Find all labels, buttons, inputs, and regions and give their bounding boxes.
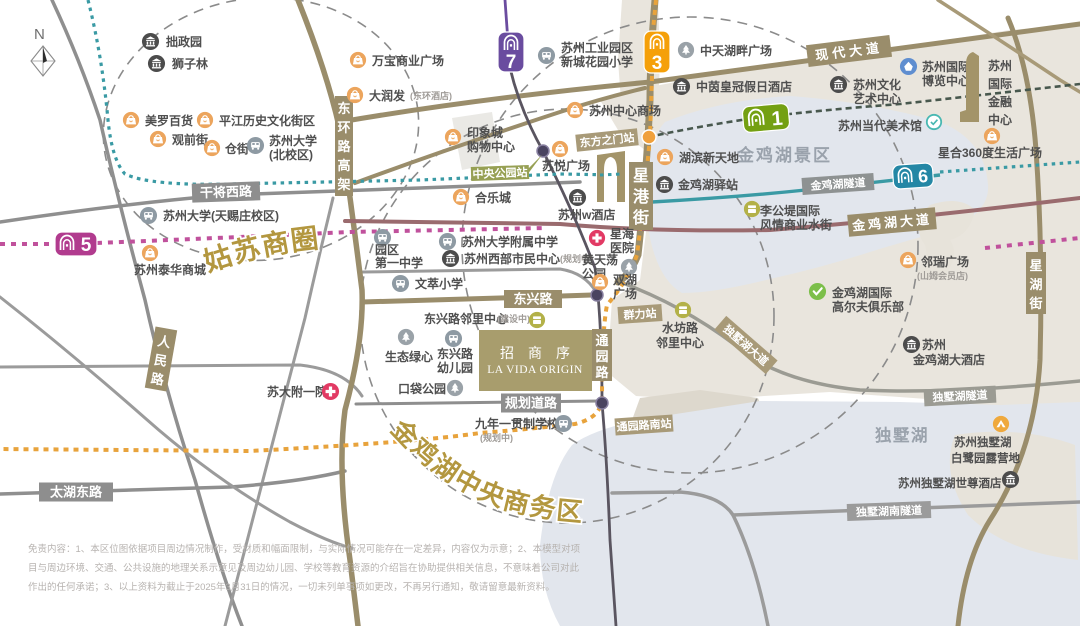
svg-text:目与周边环境、交通、公共设施的地理关系示意见及周边幼儿园、学: 目与周边环境、交通、公共设施的地理关系示意见及周边幼儿园、学校等教育资源的介绍旨…	[28, 562, 580, 574]
svg-text:苏州文化: 苏州文化	[853, 77, 901, 92]
svg-text:文萃小学: 文萃小学	[415, 276, 463, 291]
svg-text:(规划中): (规划中)	[480, 432, 513, 443]
svg-text:中心: 中心	[988, 112, 1012, 127]
svg-text:口袋公园: 口袋公园	[398, 381, 446, 396]
svg-text:苏州西部市民中心: 苏州西部市民中心	[464, 251, 560, 266]
svg-text:邻里中心: 邻里中心	[655, 335, 704, 350]
svg-text:1: 1	[771, 108, 784, 131]
svg-text:通园路: 通园路	[595, 333, 609, 380]
svg-text:苏州: 苏州	[988, 58, 1012, 73]
svg-text:湖滨新天地: 湖滨新天地	[679, 150, 739, 165]
svg-text:大润发: 大润发	[369, 88, 406, 103]
svg-text:免责内容：1、本区位图依据项目周边情况制作，受材质和幅面限制: 免责内容：1、本区位图依据项目周边情况制作，受材质和幅面限制，与实际情况可能存在…	[28, 543, 581, 555]
svg-text:苏州: 苏州	[922, 337, 946, 352]
svg-text:中天湖畔广场: 中天湖畔广场	[700, 43, 772, 58]
svg-text:星港街: 星港街	[632, 167, 650, 227]
svg-text:3: 3	[652, 53, 663, 74]
svg-text:星合360度生活广场: 星合360度生活广场	[938, 145, 1042, 160]
svg-text:博览中心: 博览中心	[922, 73, 970, 88]
svg-text:干将西路: 干将西路	[200, 184, 253, 201]
svg-text:印象城: 印象城	[467, 125, 503, 140]
svg-text:黄天荡: 黄天荡	[582, 252, 618, 267]
svg-text:观前街: 观前街	[172, 132, 208, 147]
svg-text:(山姆会员店): (山姆会员店)	[917, 270, 968, 281]
svg-text:(北校区): (北校区)	[269, 147, 313, 162]
svg-text:苏州独墅湖: 苏州独墅湖	[954, 435, 1012, 449]
svg-text:苏州当代美术馆: 苏州当代美术馆	[838, 118, 922, 133]
svg-text:招商序: 招商序	[500, 345, 570, 361]
svg-text:东兴路: 东兴路	[513, 292, 553, 307]
svg-text:苏州中心商场: 苏州中心商场	[589, 103, 661, 118]
svg-text:东环路高架: 东环路高架	[336, 101, 351, 192]
svg-text:作出的任何承诺；3、以上资料为截止于2025年3月31日的情: 作出的任何承诺；3、以上资料为截止于2025年3月31日的情况，一切未列单事项如…	[28, 581, 555, 593]
svg-text:合乐城: 合乐城	[475, 190, 511, 205]
svg-text:苏州泰华商城: 苏州泰华商城	[134, 262, 206, 277]
svg-text:苏州w酒店: 苏州w酒店	[558, 207, 615, 222]
svg-text:5: 5	[81, 235, 92, 256]
svg-text:国际: 国际	[988, 77, 1012, 91]
svg-text:拙政园: 拙政园	[166, 34, 202, 49]
svg-text:水坊路: 水坊路	[662, 320, 699, 335]
svg-text:金鸡湖景区: 金鸡湖景区	[736, 145, 832, 165]
svg-text:金鸡湖大酒店: 金鸡湖大酒店	[912, 352, 985, 367]
svg-text:苏州独墅湖世尊酒店: 苏州独墅湖世尊酒店	[898, 476, 1002, 490]
svg-text:第一中学: 第一中学	[375, 255, 423, 270]
svg-text:N: N	[34, 26, 45, 43]
svg-text:6: 6	[917, 166, 928, 187]
svg-text:仓街: 仓街	[224, 141, 249, 156]
svg-text:7: 7	[506, 52, 517, 73]
svg-text:万宝商业广场: 万宝商业广场	[371, 53, 444, 68]
svg-text:金鸡湖国际: 金鸡湖国际	[831, 285, 892, 300]
svg-text:(建设中): (建设中)	[497, 313, 530, 324]
svg-text:苏悦广场: 苏悦广场	[542, 158, 590, 173]
svg-text:星湖街: 星湖街	[1028, 258, 1042, 311]
svg-text:独墅湖: 独墅湖	[875, 425, 929, 445]
svg-text:风情商业水街: 风情商业水街	[760, 217, 832, 232]
svg-text:艺术中心: 艺术中心	[853, 91, 901, 106]
svg-text:邻瑞广场: 邻瑞广场	[920, 254, 969, 269]
svg-text:苏州大学: 苏州大学	[269, 133, 317, 148]
svg-text:东兴路: 东兴路	[437, 346, 474, 361]
svg-text:(东环酒店): (东环酒店)	[410, 90, 452, 101]
svg-text:LA VIDA ORIGIN: LA VIDA ORIGIN	[487, 364, 583, 376]
svg-text:双湖: 双湖	[613, 272, 637, 287]
svg-text:苏州国际: 苏州国际	[922, 59, 970, 74]
svg-text:金融: 金融	[987, 94, 1012, 109]
svg-text:东兴路邻里中心: 东兴路邻里中心	[424, 311, 508, 326]
svg-text:中茵皇冠假日酒店: 中茵皇冠假日酒店	[696, 79, 792, 94]
svg-text:平江历史文化街区: 平江历史文化街区	[219, 113, 315, 128]
svg-text:苏州工业园区: 苏州工业园区	[561, 40, 633, 55]
svg-text:园区: 园区	[375, 243, 399, 257]
svg-text:规划道路: 规划道路	[505, 396, 558, 411]
svg-text:太湖东路: 太湖东路	[49, 485, 103, 500]
svg-text:幼儿园: 幼儿园	[437, 360, 473, 375]
svg-text:金鸡湖驿站: 金鸡湖驿站	[677, 177, 738, 192]
svg-text:购物中心: 购物中心	[467, 139, 515, 154]
svg-text:狮子林: 狮子林	[171, 56, 208, 71]
svg-text:美罗百货: 美罗百货	[145, 113, 193, 128]
svg-text:苏大附一院: 苏大附一院	[267, 384, 327, 399]
svg-text:苏州大学附属中学: 苏州大学附属中学	[462, 234, 558, 249]
svg-text:生态绿心: 生态绿心	[385, 349, 433, 364]
svg-text:苏州大学(天赐庄校区): 苏州大学(天赐庄校区)	[163, 208, 279, 223]
svg-text:新城花园小学: 新城花园小学	[561, 54, 633, 69]
svg-text:九年一贯制学校: 九年一贯制学校	[474, 416, 560, 431]
svg-text:高尔夫俱乐部: 高尔夫俱乐部	[832, 299, 904, 314]
svg-text:白鹭园露营地: 白鹭园露营地	[951, 451, 1020, 465]
svg-text:星海: 星海	[610, 226, 634, 241]
svg-text:李公堤国际: 李公堤国际	[759, 203, 820, 218]
svg-text:广场: 广场	[613, 286, 637, 301]
